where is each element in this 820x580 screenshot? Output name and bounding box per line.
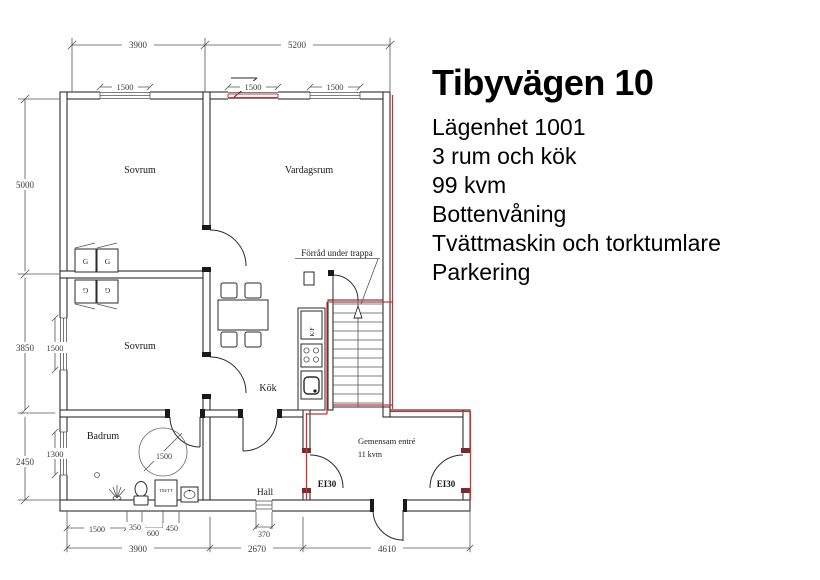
dim-top-3900: 3900: [68, 38, 209, 92]
kitchen-counter: K/F: [298, 308, 325, 410]
dim-window-top2: 1500: [225, 81, 281, 92]
info-line-apartment: Lägenhet 1001: [432, 113, 721, 142]
storage-note: Förråd under trappa: [301, 248, 372, 258]
door-arc-entrance: [373, 510, 403, 541]
svg-text:3900: 3900: [129, 544, 148, 554]
wall-spine: [203, 92, 210, 500]
page-title: Tibyvägen 10: [432, 62, 721, 104]
washbasin: [181, 487, 198, 502]
svg-text:600: 600: [147, 529, 159, 538]
svg-text:2670: 2670: [248, 544, 267, 554]
svg-text:450: 450: [166, 524, 178, 533]
washer-dryer: [155, 480, 177, 506]
window-hall: [256, 499, 272, 512]
wall-right: [383, 92, 390, 417]
door-arc-kitchen: [243, 417, 277, 451]
info-panel: Tibyvägen 10 Lägenhet 1001 3 rum och kök…: [432, 62, 721, 287]
room-label-kitchen: Kök: [259, 383, 276, 394]
room-label-bathroom: Badrum: [87, 431, 119, 442]
info-line-floor: Bottenvåning: [432, 200, 721, 229]
svg-text:1500: 1500: [89, 525, 105, 534]
dim-left-2450: 2450: [11, 417, 60, 504]
wardrobe-label: G: [82, 286, 88, 295]
room-label-entry: Gemensam entré: [358, 436, 416, 446]
toilet: [135, 482, 147, 497]
page: G G G G K/F 1500 TM/TT: [0, 0, 820, 580]
room-label-hall: Hall: [257, 488, 274, 498]
svg-text:370: 370: [258, 530, 270, 539]
dim-left-5000: 5000: [11, 95, 60, 278]
door-arc-storage: [333, 275, 358, 300]
info-line-area: 99 kvm: [432, 171, 721, 200]
washer-dryer-label: TM/TT: [159, 488, 173, 493]
info-line-rooms: 3 rum och kök: [432, 142, 721, 171]
room-label-living: Vardagsrum: [285, 165, 334, 176]
fire-door-label-right: EI30: [437, 479, 456, 489]
info-line-laundry: Tvättmaskin och torktumlare: [432, 229, 721, 258]
svg-text:4610: 4610: [378, 544, 397, 554]
wardrobe-label: G: [104, 286, 110, 295]
wardrobe-label: G: [105, 257, 111, 266]
room-labels: Sovrum Vardagsrum Sovrum Kök Badrum Hall…: [87, 165, 456, 498]
stove: [301, 344, 322, 367]
dim-hall-window: 370: [253, 512, 275, 539]
door-arc-bedroom1: [210, 230, 246, 266]
room-label-bedroom2: Sovrum: [124, 341, 156, 352]
dim-window-top3: 1500: [307, 81, 363, 92]
dim-window-top1: 1500: [97, 81, 153, 92]
window-living2: [310, 91, 360, 100]
dining-set: [218, 283, 268, 347]
svg-text:350: 350: [129, 523, 141, 532]
window-bedroom1: [100, 91, 150, 100]
info-line-parking: Parkering: [432, 258, 721, 287]
floor-drain: [95, 473, 100, 478]
svg-text:3900: 3900: [129, 40, 148, 50]
wardrobe-label: G: [83, 257, 89, 266]
svg-text:1500: 1500: [47, 343, 64, 353]
dim-bath-chain: 1500 350 600 450: [64, 512, 182, 538]
fridge-freezer-label: K/F: [310, 327, 316, 337]
room-label-entry-area: 11 kvm: [358, 450, 383, 459]
svg-text:1500: 1500: [117, 82, 134, 92]
svg-text:1500: 1500: [327, 82, 344, 92]
stair-direction-arrow: [354, 306, 362, 318]
svg-text:2450: 2450: [16, 457, 35, 467]
dining-table: [218, 300, 268, 330]
svg-text:1300: 1300: [47, 449, 64, 459]
fire-door-label-left: EI30: [318, 479, 337, 489]
shaft-box: [304, 272, 314, 285]
info-lines: Lägenhet 1001 3 rum och kök 99 kvm Botte…: [432, 113, 721, 287]
door-arc-bedroom2: [210, 357, 246, 393]
svg-text:5200: 5200: [288, 40, 307, 50]
wall-stair-left: [328, 300, 333, 410]
turning-circle-label: 1500: [156, 452, 172, 461]
svg-text:1500: 1500: [245, 82, 262, 92]
room-label-bedroom1: Sovrum: [124, 165, 156, 176]
svg-text:5000: 5000: [16, 180, 35, 190]
dim-top-5200: 5200: [205, 38, 394, 92]
svg-text:3850: 3850: [16, 343, 35, 353]
door-jambs: [165, 225, 407, 512]
